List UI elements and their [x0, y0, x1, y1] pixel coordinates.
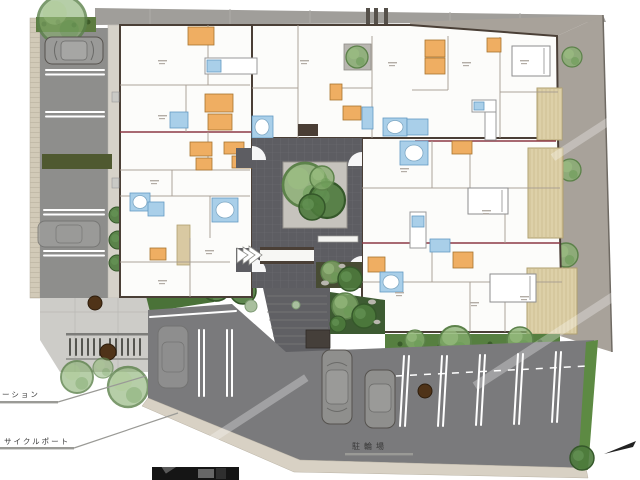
shrub-circle — [245, 300, 257, 312]
tree-icon — [61, 361, 93, 393]
tree-icon — [346, 46, 368, 68]
garbage-station-label: ーション — [2, 390, 40, 399]
bicycle-parking-label: 駐輪場 — [352, 441, 388, 451]
west-boundary-strip — [30, 18, 40, 298]
bush-icon — [330, 316, 346, 332]
mailbox-unit — [306, 330, 330, 348]
cycle-port-label: サイクルポート — [4, 437, 70, 446]
planting-band — [42, 154, 112, 169]
shrub-circle — [292, 301, 300, 309]
parked-car — [45, 37, 103, 64]
tree-trunk — [88, 296, 102, 310]
tree-icon — [562, 47, 582, 67]
ac-unit — [112, 92, 119, 102]
tree-icon — [108, 367, 148, 407]
tree-trunk — [418, 384, 432, 398]
parked-car — [38, 221, 100, 247]
parked-car — [365, 370, 395, 428]
tree-icon — [310, 166, 334, 190]
site-plan-page: ーション サイクルポート 駐輪場 — [0, 0, 640, 480]
central-planter — [283, 162, 347, 228]
bench — [318, 236, 358, 242]
courtyard-planting-pocket — [316, 261, 362, 291]
bush-icon — [338, 267, 362, 291]
bush-icon — [570, 446, 594, 470]
parked-car — [158, 326, 188, 388]
courtyard — [236, 138, 362, 291]
parked-car — [322, 350, 352, 424]
ac-unit — [112, 178, 119, 188]
leader-arrow — [604, 441, 636, 454]
site-plan-drawing: ーション サイクルポート 駐輪場 — [0, 0, 640, 480]
gate-ticks — [366, 8, 388, 24]
tree-icon — [93, 358, 113, 378]
bush-icon — [352, 304, 376, 328]
tree-icon — [299, 194, 325, 220]
stair-block — [298, 124, 318, 136]
